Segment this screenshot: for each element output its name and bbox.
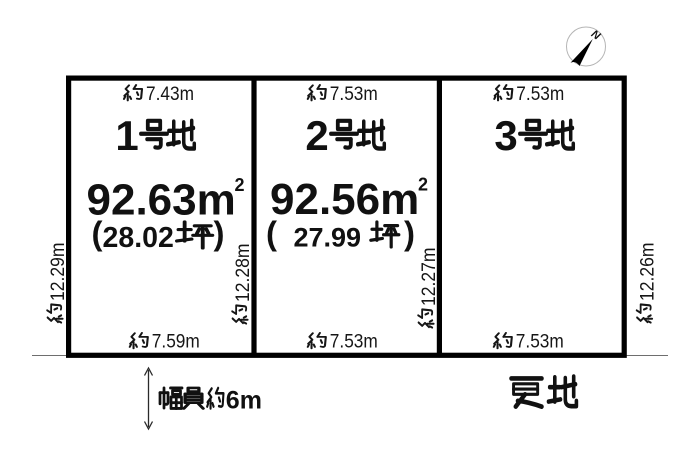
svg-text:92.56m: 92.56m: [270, 175, 419, 224]
svg-text:12.29m: 12.29m: [47, 243, 69, 302]
svg-text:): ): [214, 215, 225, 252]
svg-text:1: 1: [115, 112, 138, 159]
svg-text:(: (: [92, 215, 103, 252]
svg-text:7.53m: 7.53m: [516, 331, 564, 353]
svg-text:3: 3: [494, 112, 517, 159]
svg-text:27.99: 27.99: [294, 223, 362, 253]
svg-text:12.27m: 12.27m: [418, 248, 440, 307]
svg-text:7.59m: 7.59m: [152, 331, 200, 353]
svg-text:12.26m: 12.26m: [637, 243, 659, 302]
svg-text:7.43m: 7.43m: [146, 83, 194, 105]
svg-text:12.28m: 12.28m: [232, 244, 254, 303]
svg-text:): ): [404, 215, 415, 252]
svg-text:2: 2: [418, 175, 428, 195]
svg-text:7.53m: 7.53m: [330, 331, 378, 353]
svg-text:2: 2: [235, 175, 245, 195]
svg-text:(: (: [266, 215, 277, 252]
svg-text:6m: 6m: [226, 386, 262, 414]
svg-text:7.53m: 7.53m: [330, 83, 378, 105]
svg-text:2: 2: [305, 112, 328, 159]
svg-text:7.53m: 7.53m: [516, 83, 564, 105]
svg-text:28.02: 28.02: [103, 222, 174, 254]
